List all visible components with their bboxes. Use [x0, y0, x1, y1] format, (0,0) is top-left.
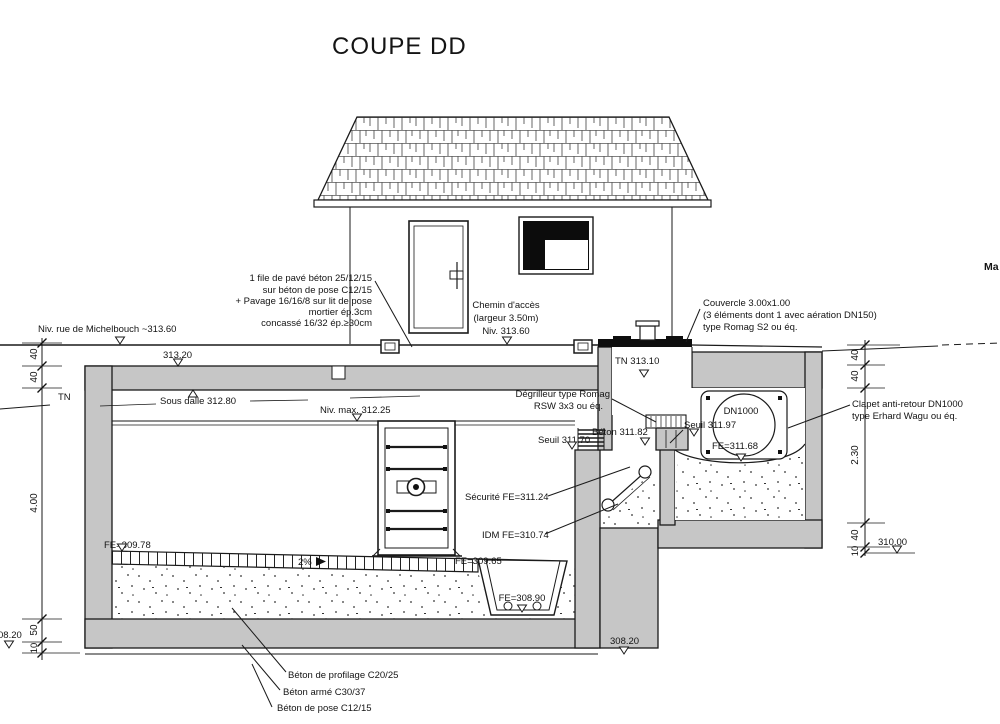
marker-access-path — [503, 337, 512, 344]
divider-wall — [575, 450, 600, 648]
marker-308-left — [5, 641, 14, 648]
flap-invert-label: FE=311.68 — [712, 441, 758, 452]
note-profiling-label: Béton de profilage C20/25 — [288, 670, 398, 681]
weir-left-label: Seuil 311.70 — [538, 435, 590, 446]
tn-left-label: TN — [58, 392, 71, 403]
marker-under-slab — [189, 390, 198, 397]
concrete-level-label: Béton 311.82 — [592, 427, 648, 438]
flap-note-line1: Clapet anti-retour DN1000 — [852, 399, 963, 410]
dim-right-3: 40 — [850, 529, 861, 541]
dim-left-2: 4.00 — [29, 493, 40, 513]
access-path-line3: Niv. 313.60 — [482, 326, 529, 337]
dim-left-4: 10 — [29, 643, 40, 654]
dim-right-0: 40 — [850, 349, 861, 361]
dim-left-1: 40 — [29, 371, 40, 383]
aeration-pipe — [640, 326, 655, 340]
cover-note-line3: type Romag S2 ou éq. — [703, 322, 798, 333]
screen-note-line2: RSW 3x3 ou éq. — [534, 401, 603, 412]
right-chamber-base — [658, 520, 822, 548]
roof — [318, 117, 708, 200]
sump-fe-label: FE=308.90 — [499, 593, 546, 604]
drawing-canvas: COUPE DD Ma — [0, 0, 1000, 724]
dim-left-3: 50 — [29, 624, 40, 636]
access-path-line1: Chemin d'accès — [472, 300, 540, 311]
floor-fe-right-label: FE=309.65 — [455, 556, 502, 567]
dimension-column-right: 40 40 2.30 40 10 — [847, 340, 915, 558]
roof-fascia — [314, 200, 711, 207]
drawing-title: COUPE DD — [332, 33, 467, 60]
paving-note-line4: mortier ép.3cm — [309, 307, 372, 318]
dn1000-label: DN1000 — [724, 406, 759, 417]
tn-shaft-label: TN 313.10 — [615, 356, 659, 367]
marker-308-right — [620, 647, 629, 654]
paving-note-line3: + Pavage 16/16/8 sur lit de pose — [235, 296, 372, 307]
cover-note-line2: (3 éléments dont 1 avec aération DN150) — [703, 310, 877, 321]
under-slab-label: Sous dalle 312.80 — [160, 396, 236, 407]
dim-right-4: 10 — [850, 546, 861, 557]
slab-notch — [332, 366, 345, 379]
cover-assembly — [598, 321, 692, 347]
note-blinding-label: Béton de pose C12/15 — [277, 703, 372, 714]
sluice-gate — [372, 421, 462, 556]
right-top-slab — [692, 352, 822, 388]
marker-310 — [893, 546, 902, 553]
note-reinforced-label: Béton armé C30/37 — [283, 687, 365, 698]
paving-note-line2: sur béton de pose C12/15 — [263, 285, 372, 296]
window — [519, 217, 593, 274]
weir-block — [656, 428, 688, 450]
tank-details — [100, 396, 575, 619]
safety-fe-label: Sécurité FE=311.24 — [465, 492, 549, 503]
flap-note-line2: type Erhard Wagu ou éq. — [852, 411, 957, 422]
marker-concrete-level — [641, 438, 650, 445]
coupe-dd-drawing: COUPE DD Ma — [0, 0, 1000, 724]
marker-313-20 — [174, 359, 183, 366]
paving-note-line5: concassé 16/32 ép.≥30cm — [261, 318, 372, 329]
bottom-slab — [85, 619, 598, 648]
slope-label: 2% — [298, 557, 312, 568]
dim-left-0: 40 — [29, 348, 40, 360]
dimension-column-left: 40 40 4.00 50 10 — [22, 338, 80, 660]
street-level-label: Niv. rue de Michelbouch ~313.60 — [38, 324, 176, 335]
marker-max-level — [353, 414, 362, 421]
idm-fe-label: IDM FE=310.74 — [482, 530, 549, 541]
cover-note-line1: Couvercle 3.00x1.00 — [703, 298, 790, 309]
mid-chamber-base — [600, 528, 658, 648]
right-wall — [805, 352, 822, 548]
level-308-right-label: 308.20 — [610, 636, 639, 647]
access-path-line2: (largeur 3.50m) — [474, 313, 539, 324]
dim-right-1: 40 — [850, 370, 861, 382]
floor-fe-left-label: FE=309.78 — [104, 540, 151, 551]
screen-note-line1: Dégrilleur type Romag — [515, 389, 610, 400]
paving-blocks — [381, 340, 592, 353]
left-wall — [85, 366, 112, 648]
door — [409, 221, 468, 333]
level-308-left-label: 08.20 — [0, 630, 22, 641]
marker-street-level — [116, 337, 125, 344]
paving-note-line1: 1 file de pavé béton 25/12/15 — [249, 273, 372, 284]
dim-right-2: 2.30 — [850, 445, 861, 465]
edge-truncated-text: Ma — [984, 261, 999, 273]
